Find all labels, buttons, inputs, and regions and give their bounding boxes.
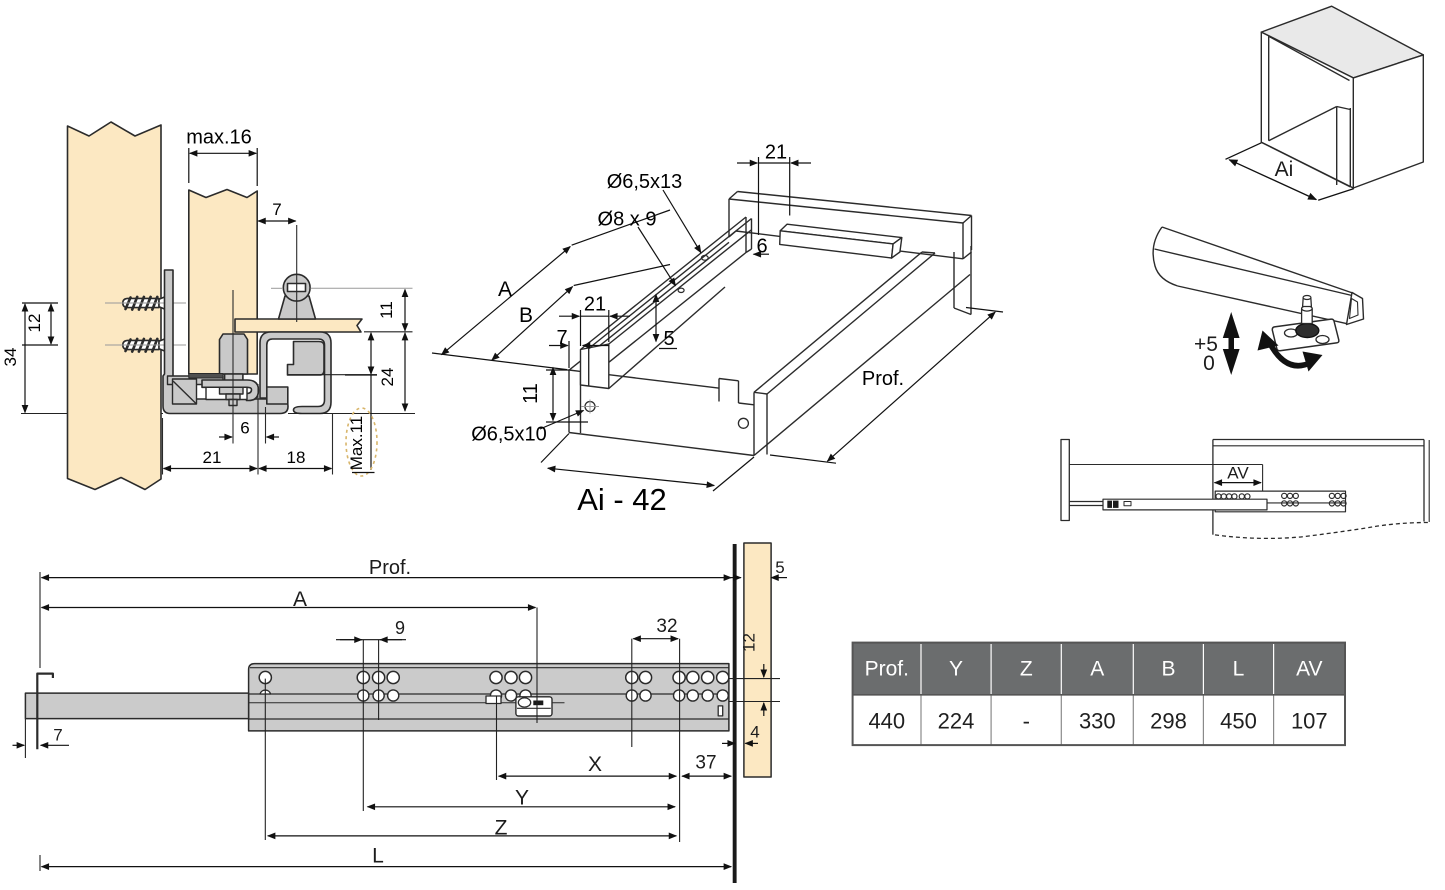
svg-text:6: 6 [240, 419, 249, 438]
svg-text:37: 37 [695, 752, 716, 773]
svg-text:Prof.: Prof. [865, 658, 909, 681]
svg-text:21: 21 [203, 448, 222, 467]
svg-text:4: 4 [750, 723, 759, 742]
svg-text:max.16: max.16 [186, 127, 252, 149]
svg-text:Prof.: Prof. [369, 557, 411, 579]
svg-text:L: L [1233, 658, 1245, 681]
svg-text:12: 12 [25, 314, 44, 333]
svg-text:9: 9 [395, 618, 405, 638]
svg-text:5: 5 [775, 558, 784, 577]
svg-text:298: 298 [1150, 709, 1187, 734]
svg-text:Ai: Ai [1275, 158, 1294, 181]
svg-text:21: 21 [584, 294, 606, 316]
svg-text:11: 11 [377, 301, 396, 319]
svg-text:34: 34 [1, 348, 20, 367]
svg-text:32: 32 [656, 616, 677, 637]
svg-text:A: A [293, 588, 307, 611]
svg-text:AV: AV [1227, 464, 1249, 483]
svg-text:440: 440 [868, 709, 905, 734]
svg-text:7: 7 [556, 327, 567, 349]
svg-text:107: 107 [1291, 709, 1328, 734]
svg-text:Ai - 42: Ai - 42 [577, 482, 667, 517]
svg-text:L: L [372, 845, 384, 868]
svg-text:224: 224 [938, 709, 975, 734]
svg-text:330: 330 [1079, 709, 1116, 734]
svg-text:-: - [1023, 709, 1030, 734]
svg-text:Y: Y [949, 658, 963, 681]
svg-text:12: 12 [740, 633, 759, 652]
svg-text:5: 5 [663, 328, 674, 350]
svg-text:Prof.: Prof. [862, 368, 904, 390]
svg-text:7: 7 [53, 726, 62, 745]
svg-text:AV: AV [1296, 658, 1322, 681]
svg-text:24: 24 [378, 368, 397, 387]
svg-text:A: A [498, 278, 512, 301]
svg-text:6: 6 [756, 236, 767, 258]
svg-text:Ø6,5x10: Ø6,5x10 [471, 424, 547, 446]
svg-text:Ø6,5x13: Ø6,5x13 [607, 171, 683, 193]
svg-text:Y: Y [515, 787, 529, 810]
svg-text:A: A [1090, 658, 1104, 681]
svg-text:450: 450 [1220, 709, 1257, 734]
svg-text:B: B [519, 304, 533, 327]
svg-text:21: 21 [765, 142, 787, 164]
svg-text:0: 0 [1203, 352, 1215, 375]
svg-text:X: X [588, 753, 602, 776]
svg-text:7: 7 [272, 200, 281, 219]
svg-text:Z: Z [495, 817, 508, 840]
svg-text:11: 11 [520, 383, 542, 404]
svg-text:Ø8 x 9: Ø8 x 9 [598, 209, 657, 231]
svg-text:B: B [1161, 658, 1175, 681]
svg-text:18: 18 [287, 448, 306, 467]
svg-text:Max.11: Max.11 [347, 416, 366, 471]
svg-text:Z: Z [1020, 658, 1033, 681]
